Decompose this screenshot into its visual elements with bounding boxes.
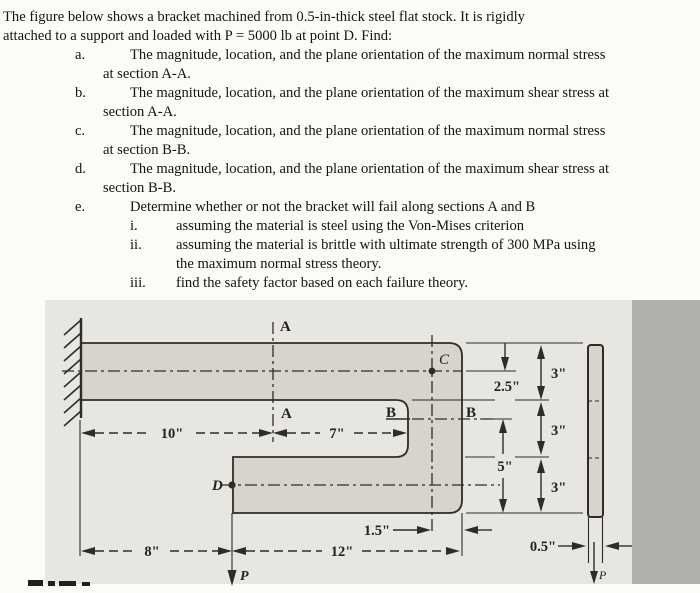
page-edge-band: [632, 300, 700, 584]
section-a-bottom-label: A: [281, 406, 292, 422]
sub-item-text: assuming the material is steel using the…: [176, 217, 524, 235]
section-b-right-label: B: [466, 405, 476, 421]
sub-item-text: assuming the material is brittle with ul…: [176, 236, 596, 254]
dim-2-5in: 2.5": [494, 379, 520, 395]
sub-item-label: i.: [130, 217, 138, 235]
section-b-left-label: B: [386, 405, 396, 421]
item-text: at section B-B.: [103, 141, 190, 159]
dim-0-5in: 0.5": [530, 539, 556, 555]
item-text: section B-B.: [103, 179, 176, 197]
item-label: e.: [75, 198, 85, 216]
intro-text: The figure below shows a bracket machine…: [3, 8, 525, 26]
dim-8in: 8": [144, 544, 159, 560]
point-d-dot: [228, 481, 235, 488]
intro-text: attached to a support and loaded with P …: [3, 27, 392, 45]
item-text: The magnitude, location, and the plane o…: [130, 122, 605, 140]
side-load-p-label: P: [598, 568, 607, 582]
item-text: Determine whether or not the bracket wil…: [130, 198, 535, 216]
sub-item-text: the maximum normal stress theory.: [176, 255, 381, 273]
item-text: section A-A.: [103, 103, 177, 121]
side-view-bar: [588, 345, 603, 517]
item-text: The magnitude, location, and the plane o…: [130, 46, 605, 64]
point-c-dot: [429, 368, 436, 375]
item-text: The magnitude, location, and the plane o…: [130, 84, 609, 102]
dim-1-5in: 1.5": [364, 523, 390, 539]
dim-10in: 10": [161, 426, 184, 442]
load-p-label: P: [240, 569, 249, 584]
point-c-label: C: [439, 352, 450, 368]
point-d-label: D: [211, 478, 223, 494]
dim-7in: 7": [329, 426, 344, 442]
sub-item-label: ii.: [130, 236, 142, 254]
dim-5in: 5": [497, 459, 512, 475]
dim-3in-mid: 3": [551, 423, 566, 439]
dim-3in-bot: 3": [551, 480, 566, 496]
item-label: d.: [75, 160, 86, 178]
item-label: a.: [75, 46, 85, 64]
item-text: The magnitude, location, and the plane o…: [130, 160, 609, 178]
dim-12in: 12": [331, 544, 354, 560]
bracket-drawing: A A B B C D P P 10" 7" 8" 12" 1.5" 2.5" …: [0, 290, 700, 588]
bracket-figure: A A B B C D P P 10" 7" 8" 12" 1.5" 2.5" …: [0, 290, 700, 588]
problem-statement: The figure below shows a bracket machine…: [0, 0, 700, 290]
item-text: at section A-A.: [103, 65, 191, 83]
item-label: b.: [75, 84, 86, 102]
item-label: c.: [75, 122, 85, 140]
dim-3in-top: 3": [551, 366, 566, 382]
section-a-top-label: A: [280, 319, 291, 335]
